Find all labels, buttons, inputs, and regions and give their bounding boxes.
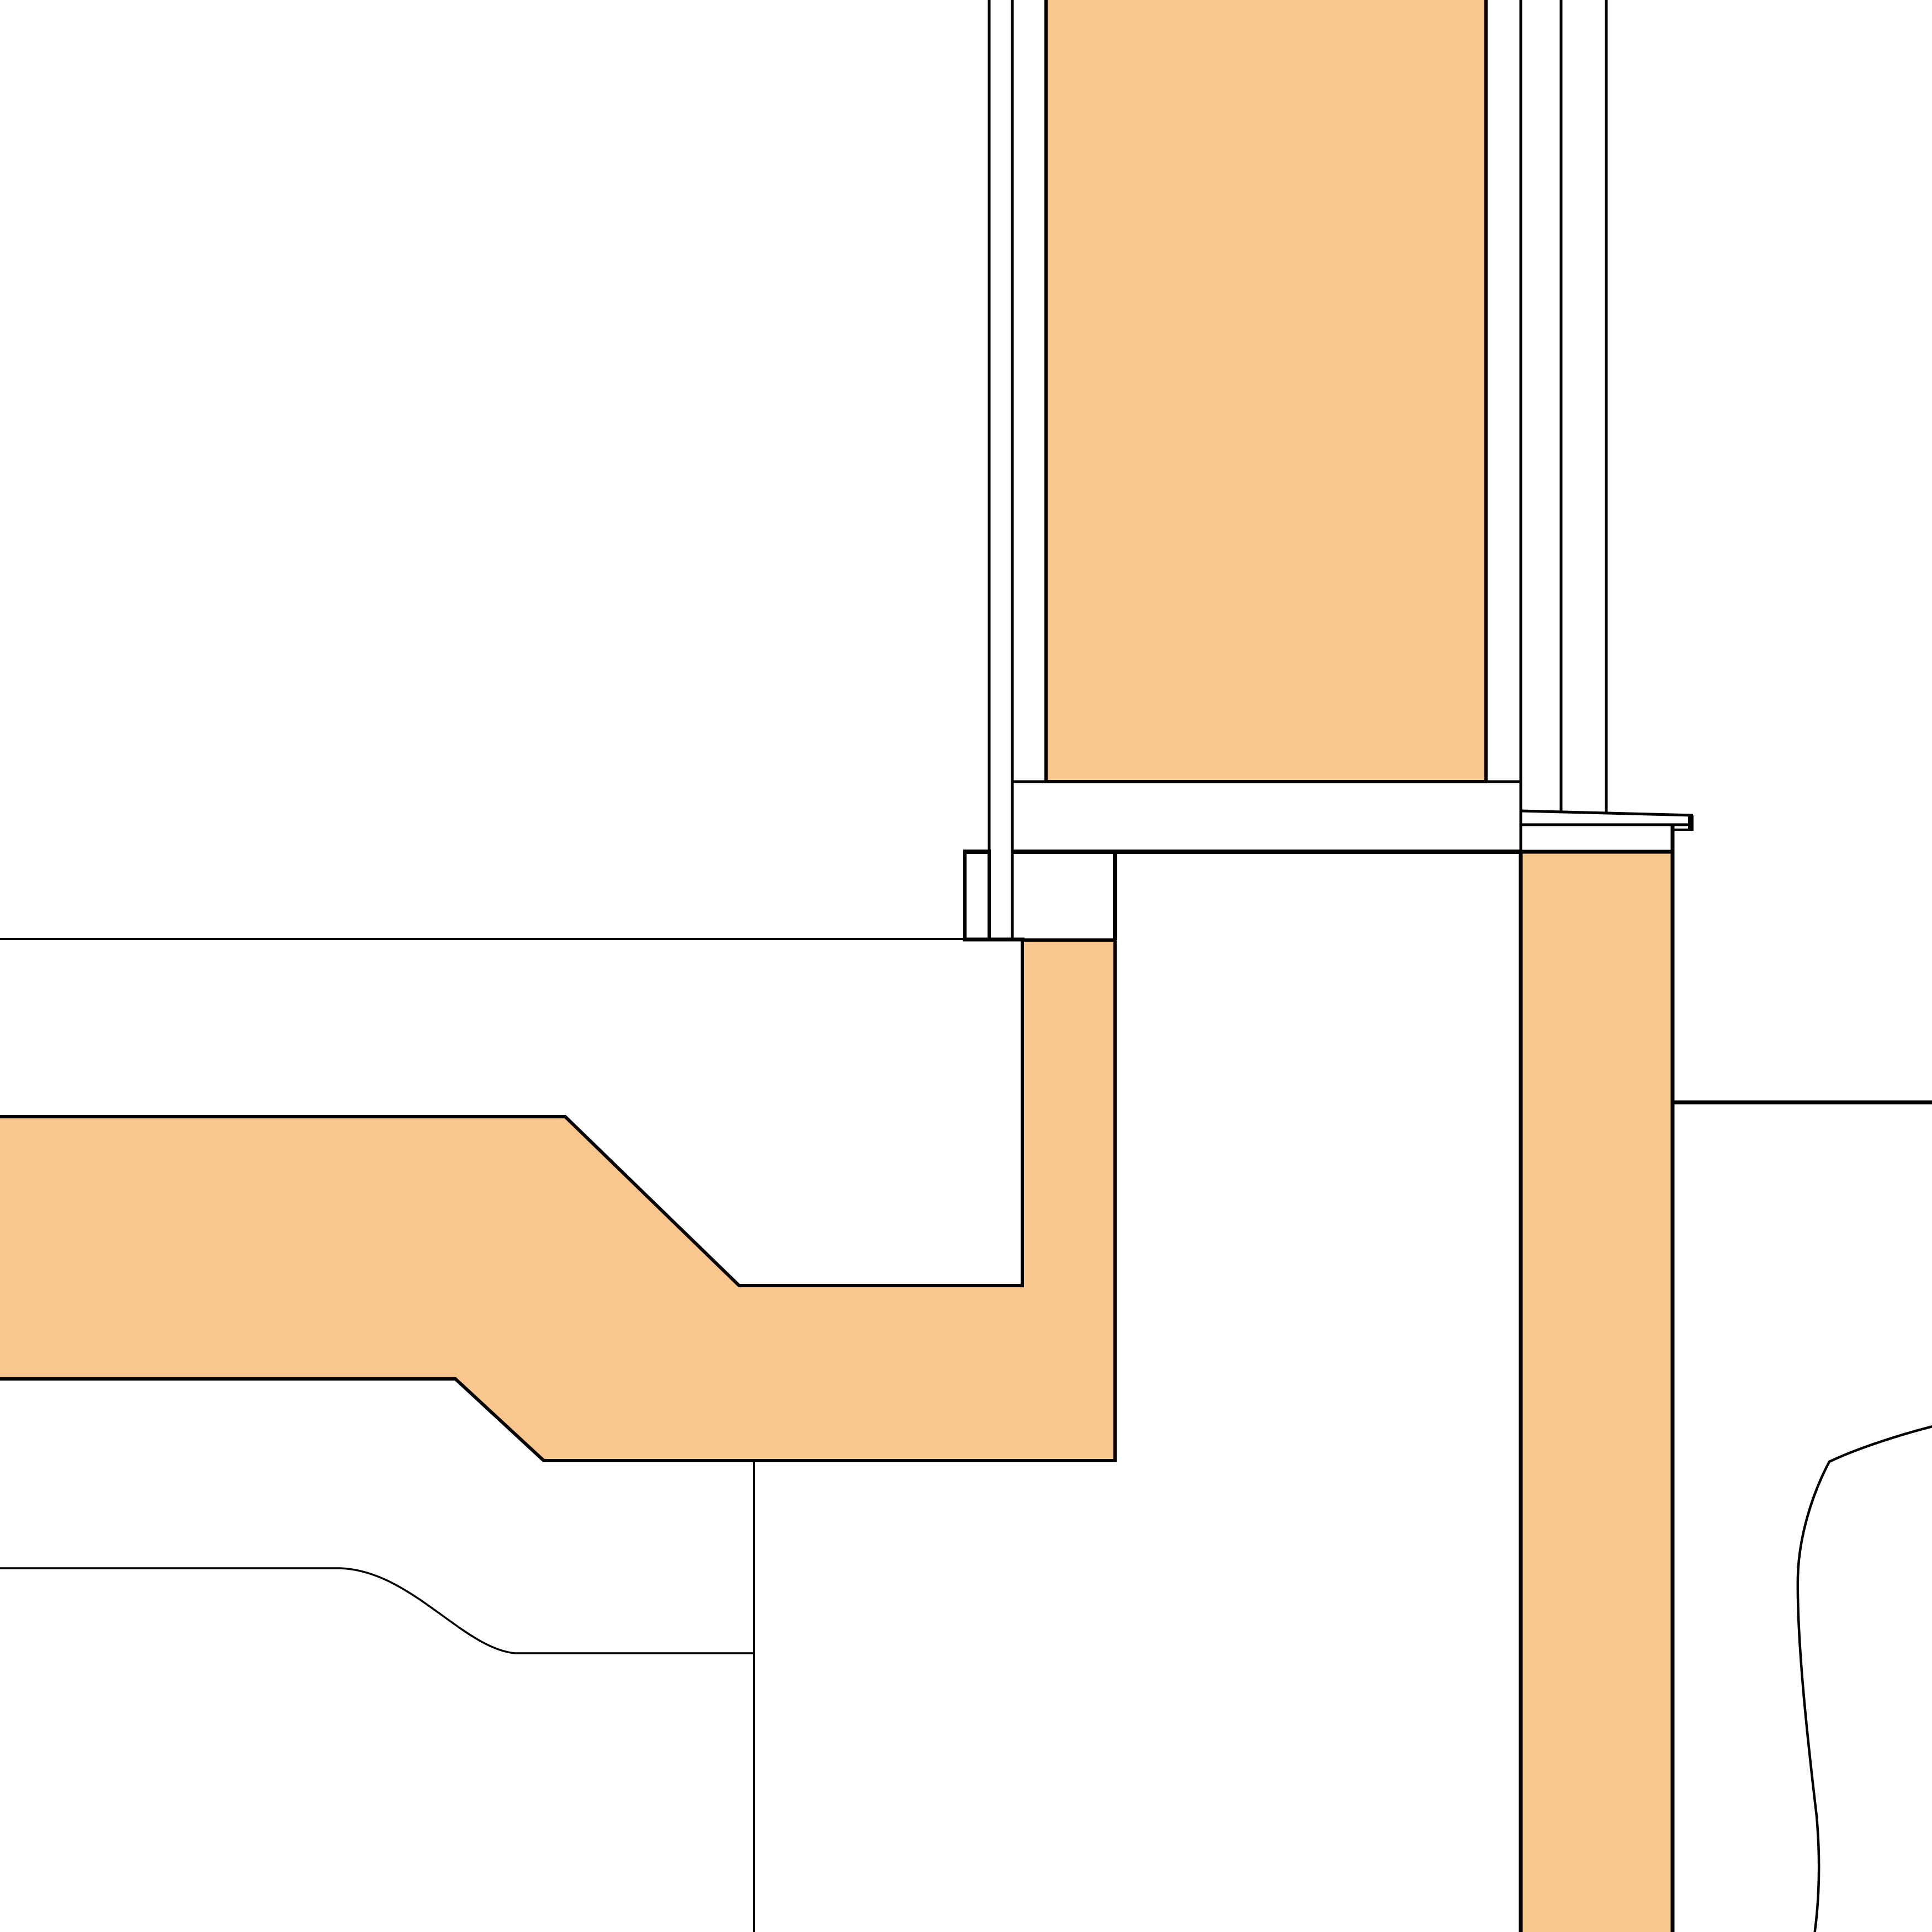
- architectural-detail-figure: [0, 0, 1932, 1932]
- floor-insulation: [0, 940, 1115, 1461]
- lower-ceiling-curve: [341, 1568, 515, 1653]
- terrain-break-curve: [1798, 1426, 1932, 1932]
- detail-drawing-svg: [0, 0, 1932, 1932]
- wall-insulation-cavity: [1046, 0, 1486, 782]
- perimeter-insulation: [1521, 852, 1673, 1932]
